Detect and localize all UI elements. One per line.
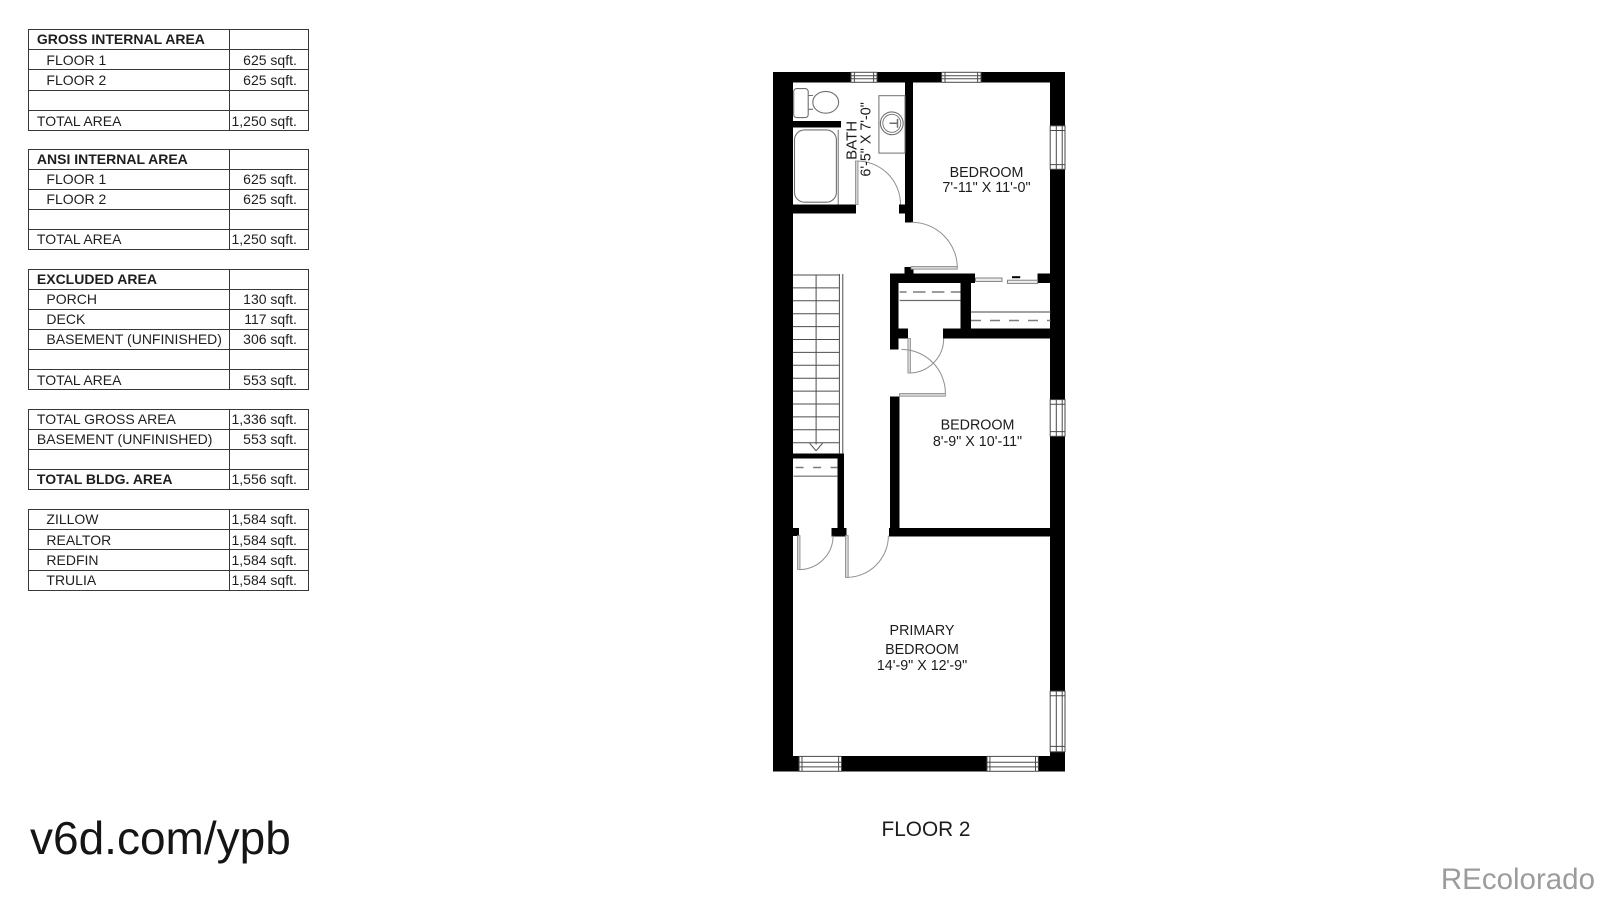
svg-text:BEDROOM: BEDROOM bbox=[950, 165, 1024, 181]
svg-text:14'-9" X 12'-9": 14'-9" X 12'-9" bbox=[877, 658, 967, 674]
svg-text:8'-9" X 10'-11": 8'-9" X 10'-11" bbox=[933, 434, 1022, 450]
svg-text:6'-5" X 7'-0": 6'-5" X 7'-0" bbox=[859, 102, 875, 176]
svg-text:BEDROOM: BEDROOM bbox=[941, 417, 1015, 433]
svg-text:7'-11" X 11'-0": 7'-11" X 11'-0" bbox=[942, 180, 1030, 196]
svg-text:BEDROOM: BEDROOM bbox=[885, 642, 959, 658]
svg-text:FLOOR 2: FLOOR 2 bbox=[882, 818, 971, 841]
svg-text:PRIMARY: PRIMARY bbox=[890, 623, 955, 639]
